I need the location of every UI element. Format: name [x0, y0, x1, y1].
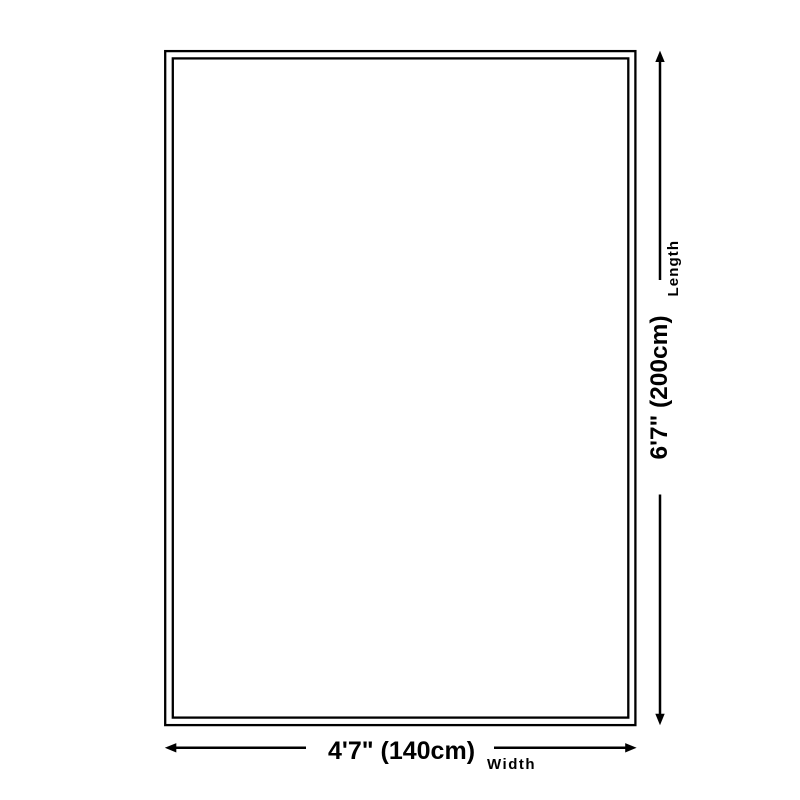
svg-text:6'7" (200cm): 6'7" (200cm) [646, 315, 673, 459]
svg-text:Width: Width [487, 756, 536, 773]
svg-text:4'7" (140cm): 4'7" (140cm) [328, 737, 475, 765]
svg-text:Length: Length [665, 240, 682, 297]
